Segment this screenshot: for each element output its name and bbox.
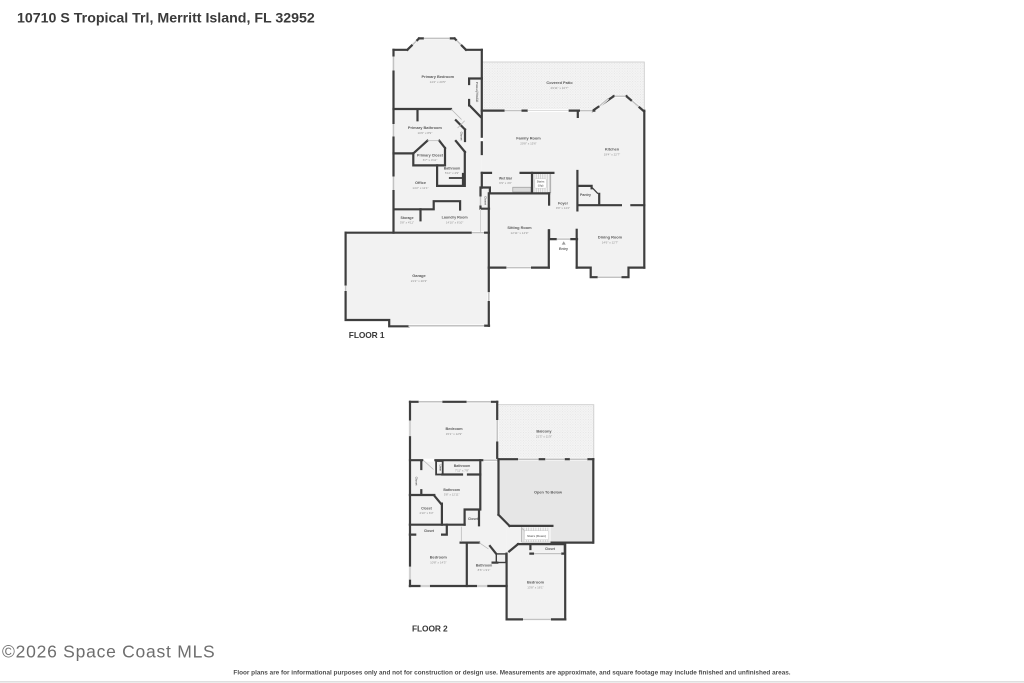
svg-text:Bathroom: Bathroom <box>476 564 493 568</box>
svg-text:15'1" x 12'9": 15'1" x 12'9" <box>446 432 462 436</box>
svg-text:Bedroom: Bedroom <box>430 554 448 559</box>
svg-text:Stairs (Down): Stairs (Down) <box>527 534 546 538</box>
svg-text:Closet: Closet <box>545 547 556 551</box>
svg-text:19'4" x 22'7": 19'4" x 22'7" <box>604 152 620 156</box>
svg-text:9'9" x 14'2": 9'9" x 14'2" <box>556 206 570 210</box>
svg-text:Bathroom: Bathroom <box>444 166 461 170</box>
svg-text:Garage: Garage <box>412 273 426 278</box>
svg-text:Foyer: Foyer <box>558 201 569 205</box>
svg-text:Bathroom: Bathroom <box>443 488 460 492</box>
svg-text:Primary Bedroom: Primary Bedroom <box>421 74 454 79</box>
svg-text:©2026 Space Coast MLS: ©2026 Space Coast MLS <box>2 641 215 661</box>
svg-text:Linen: Linen <box>438 465 441 472</box>
svg-text:Closet: Closet <box>415 477 419 486</box>
svg-text:7'11" x 7'8": 7'11" x 7'8" <box>455 468 469 472</box>
svg-text:14'10" x 6'10": 14'10" x 6'10" <box>446 220 463 224</box>
svg-text:FLOOR 1: FLOOR 1 <box>349 330 385 340</box>
svg-text:5'8" x 12'11": 5'8" x 12'11" <box>444 493 460 497</box>
svg-text:5'10" x 4'9": 5'10" x 4'9" <box>445 171 459 175</box>
svg-text:12'11" x 14'9": 12'11" x 14'9" <box>511 231 529 235</box>
svg-text:21'2" x 20'3": 21'2" x 20'3" <box>411 279 427 283</box>
svg-text:9'9" x 4'9": 9'9" x 4'9" <box>499 181 512 185</box>
svg-text:4'10" x 6'3": 4'10" x 6'3" <box>419 511 433 515</box>
svg-text:Dining Room: Dining Room <box>598 234 623 239</box>
svg-text:20'8" x 15'6": 20'8" x 15'6" <box>520 141 536 145</box>
svg-text:FLOOR 2: FLOOR 2 <box>412 623 448 633</box>
svg-text:14'2" x 11'1": 14'2" x 11'1" <box>412 186 428 190</box>
svg-text:Office: Office <box>415 180 427 185</box>
svg-text:6'7" x 4'11": 6'7" x 4'11" <box>423 158 438 162</box>
svg-text:Balcony: Balcony <box>536 429 552 434</box>
svg-text:Primary Closet: Primary Closet <box>417 153 444 157</box>
svg-text:(Up): (Up) <box>538 183 544 187</box>
svg-text:Entry: Entry <box>559 247 568 251</box>
svg-text:Bedroom: Bedroom <box>445 426 463 431</box>
svg-text:Covered Patio: Covered Patio <box>546 80 573 85</box>
svg-text:Laundry Room: Laundry Room <box>442 216 469 220</box>
svg-text:Floor plans are for informatio: Floor plans are for informational purpos… <box>233 670 790 677</box>
svg-text:Storage: Storage <box>400 216 413 220</box>
svg-text:14'6" x 12'7": 14'6" x 12'7" <box>602 240 618 244</box>
svg-text:13'8" x 16'1": 13'8" x 16'1" <box>527 585 543 589</box>
svg-text:Primary Bathroom: Primary Bathroom <box>408 125 442 130</box>
svg-text:14'2" x 20'5": 14'2" x 20'5" <box>430 80 446 84</box>
svg-text:Family Room: Family Room <box>516 135 541 140</box>
svg-text:Wet Bar: Wet Bar <box>499 177 513 181</box>
svg-text:Open To Below: Open To Below <box>534 489 563 494</box>
svg-text:Pantry: Pantry <box>580 193 591 197</box>
svg-text:Sitting Room: Sitting Room <box>507 225 532 230</box>
svg-text:29'11" x 10'7": 29'11" x 10'7" <box>551 86 569 90</box>
svg-text:2'4" x 8'3": 2'4" x 8'3" <box>476 91 479 102</box>
svg-text:Closet: Closet <box>459 132 463 141</box>
svg-text:8'6" x 9'1": 8'6" x 9'1" <box>478 568 491 572</box>
svg-text:Kitchen: Kitchen <box>605 146 620 151</box>
svg-text:10'0" x 8'9": 10'0" x 8'9" <box>418 131 433 135</box>
svg-text:Closet: Closet <box>424 529 435 533</box>
svg-text:10710 S Tropical Trl, Merritt: 10710 S Tropical Trl, Merritt Island, FL… <box>17 11 315 27</box>
svg-text:Closet: Closet <box>421 507 433 511</box>
svg-text:5'8" x 4'11": 5'8" x 4'11" <box>400 221 414 225</box>
svg-text:Bedroom: Bedroom <box>527 579 545 584</box>
svg-text:Closet: Closet <box>484 196 488 205</box>
svg-text:Bathroom: Bathroom <box>454 464 471 468</box>
svg-text:10'8" x 14'3": 10'8" x 14'3" <box>430 560 446 564</box>
svg-text:21'3" x 11'9": 21'3" x 11'9" <box>536 435 552 439</box>
svg-text:Closet: Closet <box>468 517 479 521</box>
